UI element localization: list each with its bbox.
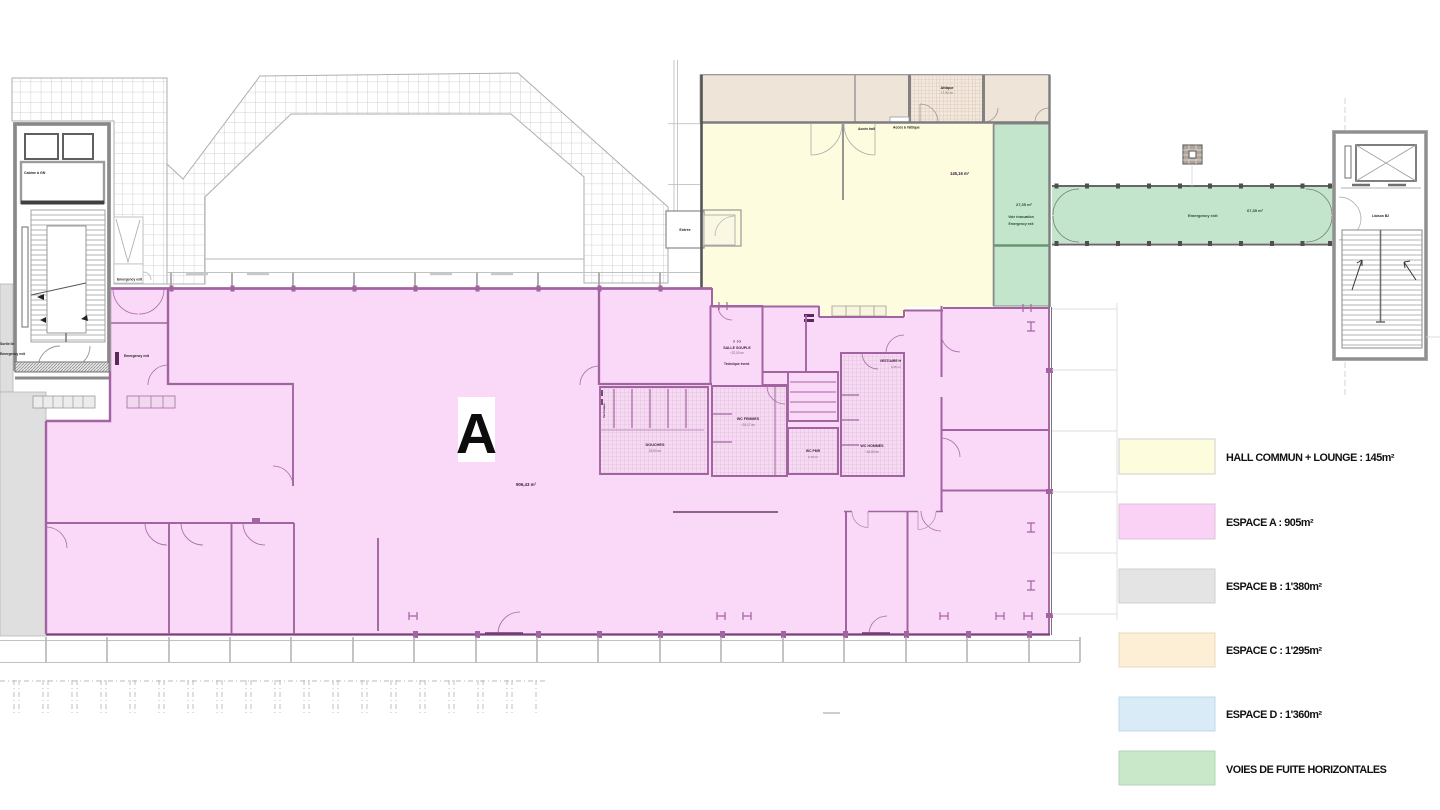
svg-text:ESPACE A : 905m²: ESPACE A : 905m²	[1226, 517, 1314, 529]
svg-text:Emergency exit: Emergency exit	[117, 278, 143, 282]
svg-text:ESPACE B : 1'380m²: ESPACE B : 1'380m²	[1226, 581, 1323, 593]
svg-text:A: A	[456, 402, 497, 466]
svg-text:WC HOMMES: WC HOMMES	[860, 444, 884, 448]
svg-text:ESPACE C : 1'295m²: ESPACE C : 1'295m²	[1226, 645, 1323, 657]
svg-text:Voie évacuation: Voie évacuation	[1008, 215, 1034, 219]
svg-text:WC PMR: WC PMR	[806, 449, 821, 453]
svg-text:Technique évent.: Technique évent.	[724, 362, 750, 366]
svg-text:Liaison B2: Liaison B2	[1372, 214, 1389, 218]
svg-text:9,45 m²: 9,45 m²	[891, 365, 901, 369]
svg-text:145,16 m²: 145,16 m²	[950, 171, 970, 176]
svg-text:Emergency exit: Emergency exit	[1008, 222, 1034, 226]
svg-text:4,70 m²: 4,70 m²	[808, 455, 818, 459]
svg-text:? ??: ? ??	[733, 339, 742, 344]
svg-text:WC FEMMES: WC FEMMES	[737, 417, 760, 421]
svg-text:DOUCHES: DOUCHES	[646, 443, 665, 447]
svg-text:Emergency exit: Emergency exit	[124, 354, 150, 358]
svg-text:HALL COMMUN + LOUNGE : 145m²: HALL COMMUN + LOUNGE : 145m²	[1226, 452, 1395, 464]
svg-text:~24,50 m²: ~24,50 m²	[865, 450, 879, 454]
svg-text:ESPACE D : 1'360m²: ESPACE D : 1'360m²	[1226, 709, 1323, 721]
svg-text:Sortie lie: Sortie lie	[0, 342, 14, 346]
svg-text:23,94 m²: 23,94 m²	[649, 449, 662, 453]
svg-text:Attique: Attique	[940, 86, 953, 90]
svg-text:~24,17 m²: ~24,17 m²	[741, 423, 755, 427]
svg-text:Cabine à GN: Cabine à GN	[24, 171, 46, 175]
svg-text:27,35 m²: 27,35 m²	[1016, 202, 1033, 207]
svg-text:VESTIAIRE H: VESTIAIRE H	[880, 359, 902, 363]
svg-text:67,35 m²: 67,35 m²	[1247, 208, 1264, 213]
svg-text:~22,00 m²: ~22,00 m²	[730, 351, 744, 355]
svg-text:SALLE SOUPLE: SALLE SOUPLE	[723, 346, 751, 350]
svg-text:Technique: Technique	[602, 403, 606, 418]
svg-text:VOIES DE FUITE HORIZONTALES: VOIES DE FUITE HORIZONTALES	[1226, 764, 1387, 776]
svg-text:17,50 m²: 17,50 m²	[941, 91, 954, 95]
svg-text:906,43 m²: 906,43 m²	[516, 482, 537, 487]
svg-text:Emergency exit: Emergency exit	[0, 352, 26, 356]
svg-text:Emergency exit: Emergency exit	[1188, 213, 1218, 218]
svg-text:Accès hall: Accès hall	[858, 127, 875, 131]
svg-text:Accès à l'attique: Accès à l'attique	[893, 126, 920, 130]
svg-text:Entrée: Entrée	[679, 228, 690, 232]
